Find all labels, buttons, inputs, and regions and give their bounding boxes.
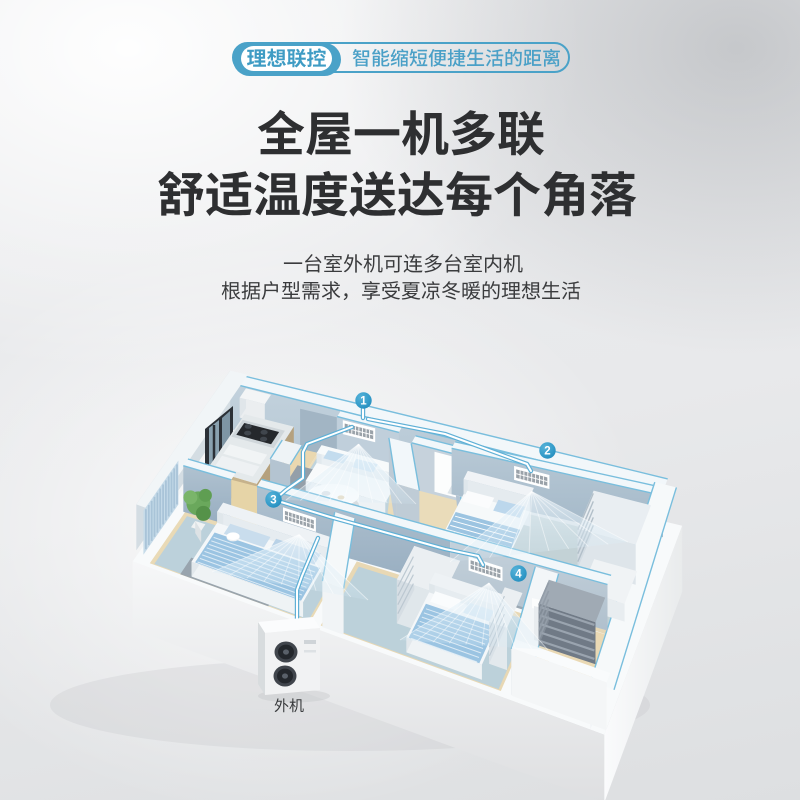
svg-text:3: 3 <box>270 494 276 506</box>
svg-text:4: 4 <box>515 568 522 580</box>
svg-text:1: 1 <box>360 395 367 407</box>
svg-text:2: 2 <box>544 445 550 457</box>
